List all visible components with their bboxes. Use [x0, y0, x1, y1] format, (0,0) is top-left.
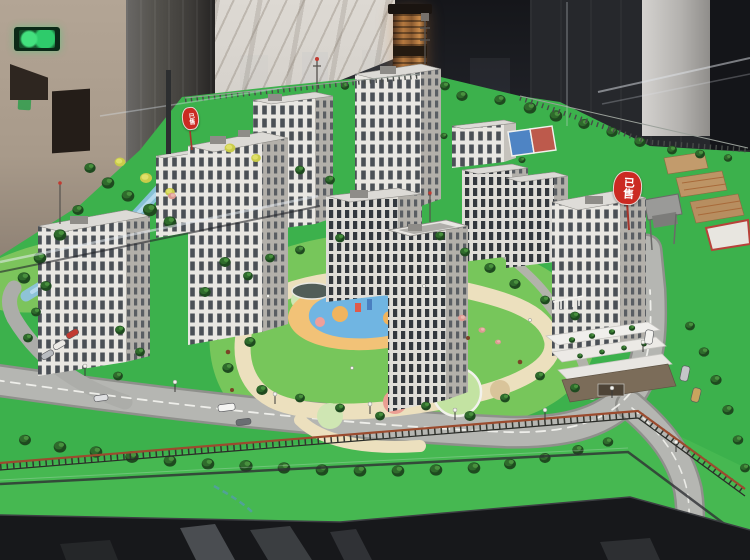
scale-model [0, 0, 750, 560]
building-tower-4 [188, 130, 288, 345]
clubhouse [452, 120, 516, 168]
play-equipment [355, 303, 361, 312]
building-tower-2 [355, 13, 441, 215]
sports-court [508, 126, 556, 156]
sales-gallery-model-photo: 已售 已售 [0, 0, 750, 560]
glass-corner-post [166, 70, 171, 154]
